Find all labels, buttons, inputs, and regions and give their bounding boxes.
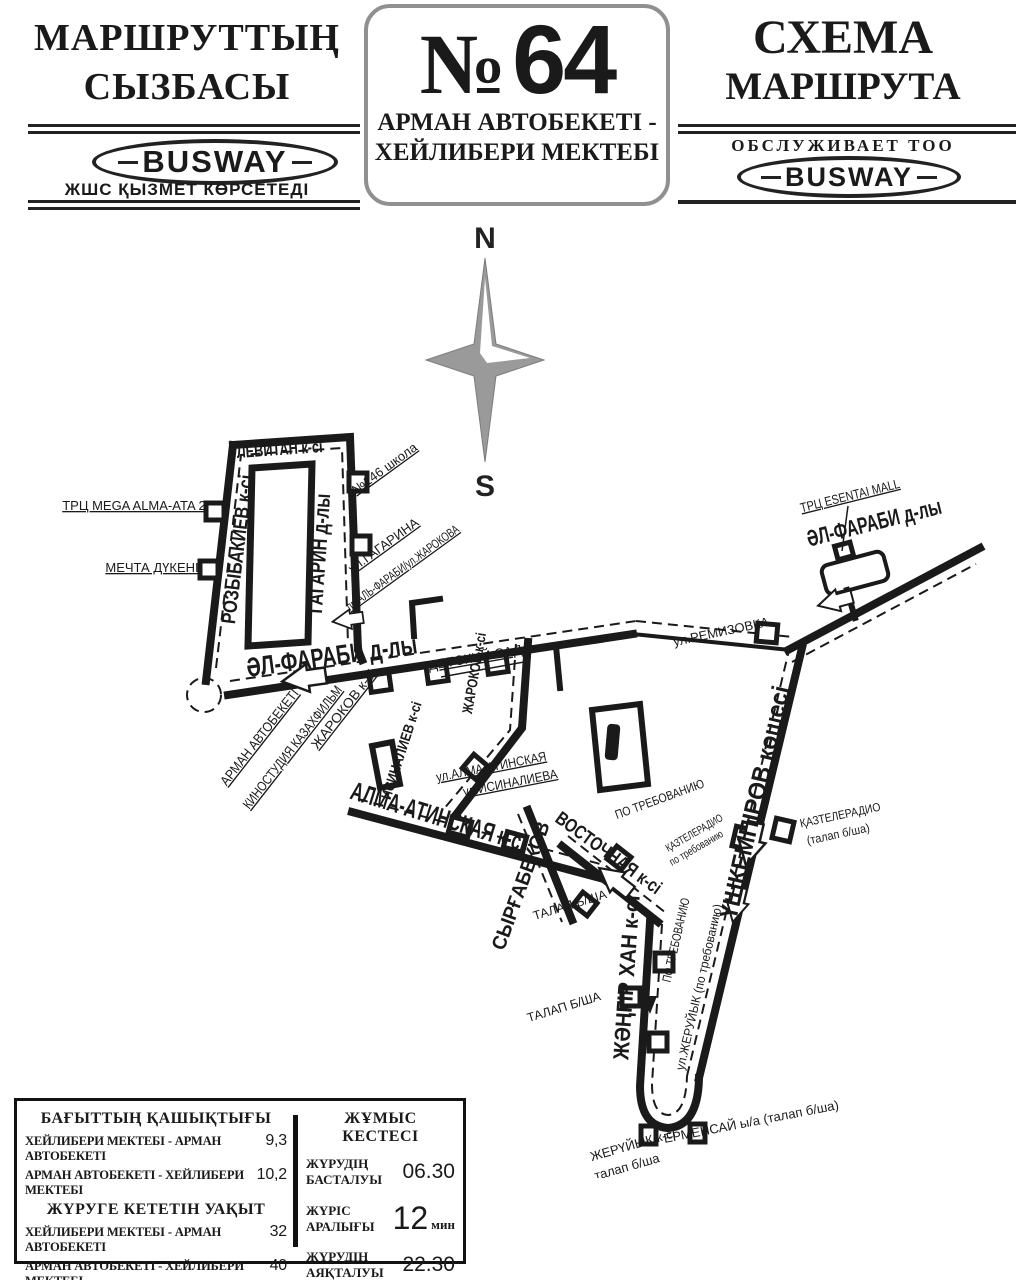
- bus-stop-marker-mega: [206, 503, 224, 520]
- busway-wordmark: BUSWAY: [138, 144, 291, 180]
- street-label-zharokov: ЖАРОКОВ к-сі: [460, 632, 490, 716]
- route-scheme-poster: МАРШРУТТЫҢ СЫЗБАСЫ BUSWAY ЖШС ҚЫЗМЕТ КӨР…: [0, 0, 1024, 1280]
- compass-north-label: N: [474, 222, 496, 255]
- left-title-line2: СЫЗБАСЫ: [84, 66, 291, 108]
- busway-line-right: [917, 176, 937, 179]
- route-destination: АРМАН АВТОБЕКЕТІ - ХЕЙЛИБЕРИ МЕКТЕБІ: [375, 108, 659, 168]
- number-sign: №: [420, 14, 506, 114]
- schedule-interval-row: ЖҮРІС АРАЛЫҒЫ 12мин: [306, 1200, 455, 1237]
- stop-label-arman: АРМАН АВТОБЕКЕТІ: [217, 686, 301, 788]
- schedule-title: ЖҰМЫС КЕСТЕСІ: [306, 1110, 455, 1146]
- schedule-end-value: 22.30: [402, 1253, 455, 1277]
- busway-line-right: [292, 161, 312, 164]
- served-by-label: ОБСЛУЖИВАЕТ ТОО: [668, 136, 1018, 156]
- left-rule-bottom: [28, 200, 360, 210]
- route-number-box: № 64 АРМАН АВТОБЕКЕТІ - ХЕЙЛИБЕРИ МЕКТЕБ…: [364, 4, 670, 206]
- city-block-zharokov-east: [592, 704, 648, 790]
- right-rule-bottom: [678, 200, 1016, 204]
- distance-row-value: 10,2: [257, 1166, 287, 1184]
- busway-logo-left: BUSWAY: [92, 139, 338, 185]
- right-rule-top: [678, 124, 1016, 134]
- time-row-label: ХЕЙЛИБЕРИ МЕКТЕБІ - АРМАН АВТОБЕКЕТІ: [25, 1225, 266, 1255]
- left-title: МАРШРУТТЫҢ СЫЗБАСЫ: [14, 14, 360, 113]
- right-title: СХЕМА МАРШРУТА: [668, 10, 1018, 110]
- time-row: АРМАН АВТОБЕКЕТІ - ХЕЙЛИБЕРИ МЕКТЕБІ 40: [25, 1257, 287, 1280]
- time-row-value: 32: [270, 1223, 287, 1241]
- compass-south-label: S: [475, 470, 495, 503]
- right-title-line2: МАРШРУТА: [668, 65, 1018, 110]
- busway-line-left: [118, 161, 138, 164]
- busway-line-left: [761, 176, 781, 179]
- destination-line1: АРМАН АВТОБЕКЕТІ -: [377, 109, 656, 136]
- stop-label-po-trebovaniyu-zhangir: ПО ТРЕБОВАНИЮ: [660, 896, 693, 983]
- left-title-line1: МАРШРУТТЫҢ: [34, 17, 340, 59]
- right-title-line1: СХЕМА: [668, 10, 1018, 65]
- bus-stop-marker-mechta: [200, 561, 218, 578]
- info-panel: БАҒЫТТЫҢ ҚАШЫҚТЫҒЫ ХЕЙЛИБЕРИ МЕКТЕБІ - А…: [14, 1098, 466, 1264]
- stop-label-mega: ТРЦ MEGA ALMA-ATA 2: [62, 498, 206, 513]
- block-corner-gagarin: [412, 599, 440, 636]
- route-number: 64: [512, 4, 614, 116]
- time-title: ЖҮРУГЕ КЕТЕТІН УАҚЫТ: [25, 1201, 287, 1219]
- schedule-end-label: ЖҮРУДІҢ АЯҚТАЛУЫ: [306, 1249, 402, 1280]
- info-left-column: БАҒЫТТЫҢ ҚАШЫҚТЫҒЫ ХЕЙЛИБЕРИ МЕКТЕБІ - А…: [17, 1101, 293, 1261]
- schedule-interval-value: 12: [393, 1200, 429, 1236]
- bus-stop-marker-esentai: [834, 542, 853, 560]
- block-corner-zharokov: [556, 640, 600, 688]
- stop-label-talap-2: ТАЛАП Б/ША: [525, 989, 603, 1025]
- stop-label-mechta: МЕЧТА ДҮКЕНІ: [105, 560, 198, 575]
- schedule-interval-unit: мин: [431, 1217, 455, 1232]
- left-rule-top: [28, 124, 360, 134]
- route-map: N S: [0, 218, 1024, 1178]
- schedule-start-value: 06.30: [402, 1160, 455, 1184]
- left-subtitle: ЖШС ҚЫЗМЕТ КӨРСЕТЕДІ: [14, 180, 360, 200]
- busway-wordmark: BUSWAY: [781, 162, 917, 193]
- route-number-row: № 64: [420, 4, 614, 116]
- distance-row-label: АРМАН АВТОБЕКЕТІ - ХЕЙЛИБЕРИ МЕКТЕБІ: [25, 1168, 253, 1198]
- city-block-levitan: [248, 464, 312, 646]
- bus-stop-marker-zheruyik-street: [649, 1033, 667, 1051]
- distance-row: ХЕЙЛИБЕРИ МЕКТЕБІ - АРМАН АВТОБЕКЕТІ 9,3: [25, 1132, 287, 1164]
- destination-line2: ХЕЙЛИБЕРИ МЕКТЕБІ: [375, 139, 659, 166]
- time-row: ХЕЙЛИБЕРИ МЕКТЕБІ - АРМАН АВТОБЕКЕТІ 32: [25, 1223, 287, 1255]
- stop-label-school146: №146 школа: [349, 439, 421, 497]
- time-row-value: 40: [270, 1257, 287, 1275]
- distance-row-label: ХЕЙЛИБЕРИ МЕКТЕБІ - АРМАН АВТОБЕКЕТІ: [25, 1134, 261, 1164]
- schedule-interval-label: ЖҮРІС АРАЛЫҒЫ: [306, 1203, 393, 1235]
- distance-row-value: 9,3: [265, 1132, 287, 1150]
- direction-arrow-esentai-icon: [815, 586, 855, 617]
- time-row-label: АРМАН АВТОБЕКЕТІ - ХЕЙЛИБЕРИ МЕКТЕБІ: [25, 1259, 266, 1280]
- info-right-column: ЖҰМЫС КЕСТЕСІ ЖҮРУДІҢ БАСТАЛУЫ 06.30 ЖҮР…: [298, 1101, 463, 1261]
- distance-row: АРМАН АВТОБЕКЕТІ - ХЕЙЛИБЕРИ МЕКТЕБІ 10,…: [25, 1166, 287, 1198]
- distance-title: БАҒЫТТЫҢ ҚАШЫҚТЫҒЫ: [25, 1110, 287, 1128]
- street-label-ushkempirov: ҮШКЕМПІРОВ көшесі: [715, 683, 796, 921]
- bus-stop-marker-kaztele-right: [772, 818, 794, 842]
- schedule-start-label: ЖҮРУДІҢ БАСТАЛУЫ: [306, 1156, 402, 1188]
- schedule-end-row: ЖҮРУДІҢ АЯҚТАЛУЫ 22.30: [306, 1249, 455, 1280]
- busway-logo-right: BUSWAY: [737, 156, 961, 198]
- schedule-start-row: ЖҮРУДІҢ БАСТАЛУЫ 06.30: [306, 1156, 455, 1188]
